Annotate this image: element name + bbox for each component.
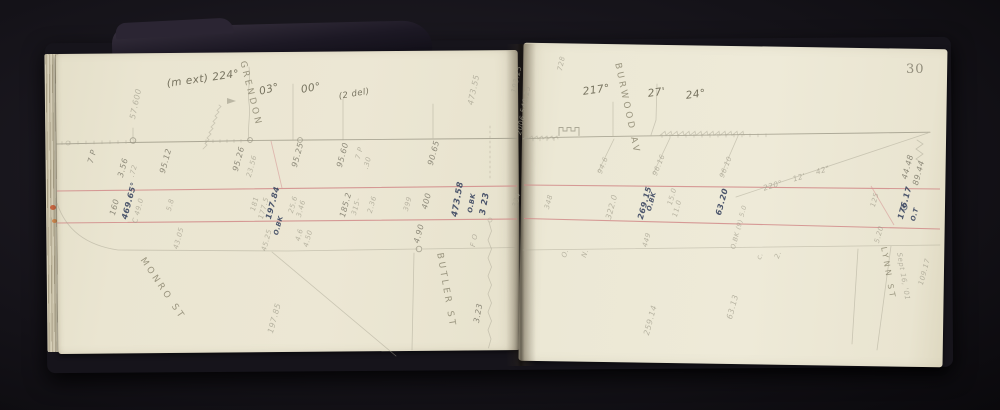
survey-sketch bbox=[0, 0, 1000, 410]
building-symbol bbox=[559, 128, 579, 136]
page-number: 30 bbox=[906, 62, 925, 77]
survey-main-line bbox=[57, 131, 930, 144]
notebook-photo: (m ext) 224° 03° 00° (2 del) 217° 27' 24… bbox=[0, 0, 1000, 410]
red-ruled-lines bbox=[57, 141, 940, 229]
angle-label: 27' bbox=[647, 86, 666, 100]
